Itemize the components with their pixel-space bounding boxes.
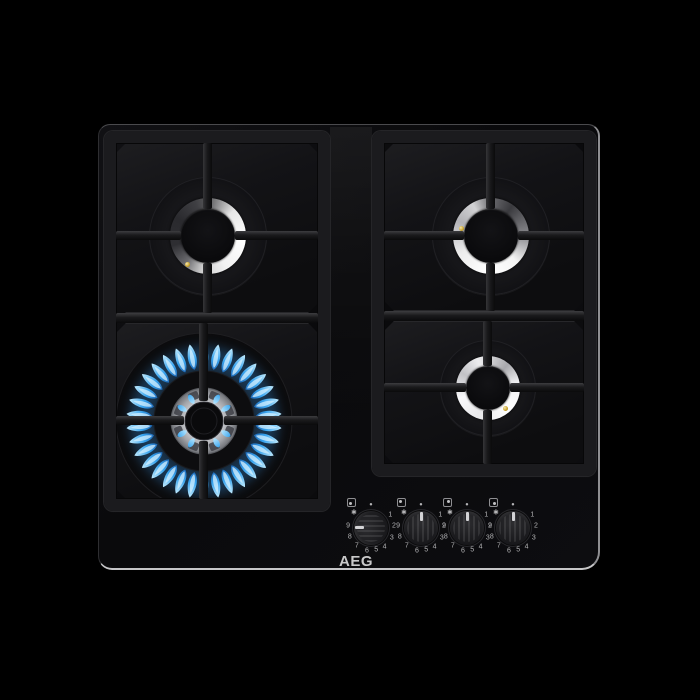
right-rear-grate-arm-bottom — [486, 263, 495, 311]
knob-indicator — [466, 512, 469, 521]
dial-mark: 9 — [396, 522, 400, 529]
dial-mark: 8 — [398, 533, 402, 540]
dial-mark: • — [419, 502, 422, 509]
dial-mark: 4 — [525, 543, 529, 550]
right-front-grate-arm-right — [510, 383, 584, 392]
left-rear-grate-arm-bottom — [203, 263, 212, 313]
dial-mark: 5 — [470, 547, 474, 554]
knob-indicator — [355, 527, 364, 530]
dial-mark: 6 — [461, 547, 465, 554]
dial-mark: 7 — [497, 543, 501, 550]
left-front-grate-arm-right — [224, 416, 318, 425]
right-front-grate-arm-bottom — [483, 410, 492, 464]
brand-logo: AEG — [339, 553, 373, 570]
dial-mark: 6 — [507, 547, 511, 554]
dial-mark: 5 — [374, 547, 378, 554]
right-front-grate-arm-top — [483, 321, 492, 366]
knob-disc[interactable] — [354, 511, 388, 545]
right-rear-grate-arm-top — [486, 143, 495, 209]
left-front-grate-arm-left — [116, 416, 184, 425]
glass-reflection — [330, 127, 372, 517]
right-grate-divider-bar — [384, 311, 584, 321]
left-rear-grate-arm-right — [235, 231, 318, 240]
right-rear-grate-arm-right — [518, 231, 584, 240]
dial-mark: 6 — [415, 547, 419, 554]
knob-disc[interactable] — [496, 511, 530, 545]
dial-mark: • — [369, 502, 372, 509]
dial-mark: 9 — [346, 522, 350, 529]
right-rear-grate-arm-left — [384, 231, 464, 240]
left-front-grate-arm-bottom — [199, 441, 208, 499]
dial-mark: 7 — [355, 543, 359, 550]
dial-mark: ✱ — [493, 509, 499, 516]
dial-mark: 5 — [516, 547, 520, 554]
dial-mark: 8 — [444, 533, 448, 540]
dial-mark: 8 — [490, 533, 494, 540]
left-grate-divider-bar — [116, 313, 318, 323]
dial-mark: 2 — [534, 523, 538, 530]
knob-front-right[interactable]: •123456789✱ — [478, 493, 548, 563]
dial-mark: 8 — [348, 533, 352, 540]
dial-mark: • — [511, 502, 514, 509]
dial-mark: 1 — [530, 512, 534, 519]
dial-mark: 9 — [488, 522, 492, 529]
right-front-grate-arm-left — [384, 383, 466, 392]
dial-mark: 3 — [532, 534, 536, 541]
product-shot-background: •123456789✱ •123456789✱ •123456789✱ •123… — [0, 0, 700, 700]
knob-indicator — [420, 512, 423, 521]
left-rear-grate-arm-left — [116, 231, 181, 240]
dial-mark: 5 — [424, 547, 428, 554]
knob-indicator — [512, 512, 515, 521]
dial-mark: • — [465, 502, 468, 509]
hob-glass-surface: •123456789✱ •123456789✱ •123456789✱ •123… — [98, 124, 600, 570]
left-rear-grate-arm-top — [203, 143, 212, 209]
dial-mark: 7 — [451, 543, 455, 550]
dial-mark: ✱ — [401, 509, 407, 516]
dial-mark: 7 — [405, 543, 409, 550]
dial-mark: ✱ — [447, 509, 453, 516]
dial-mark: ✱ — [351, 509, 357, 516]
left-front-grate-arm-top — [199, 323, 208, 401]
dial-mark: 9 — [442, 522, 446, 529]
